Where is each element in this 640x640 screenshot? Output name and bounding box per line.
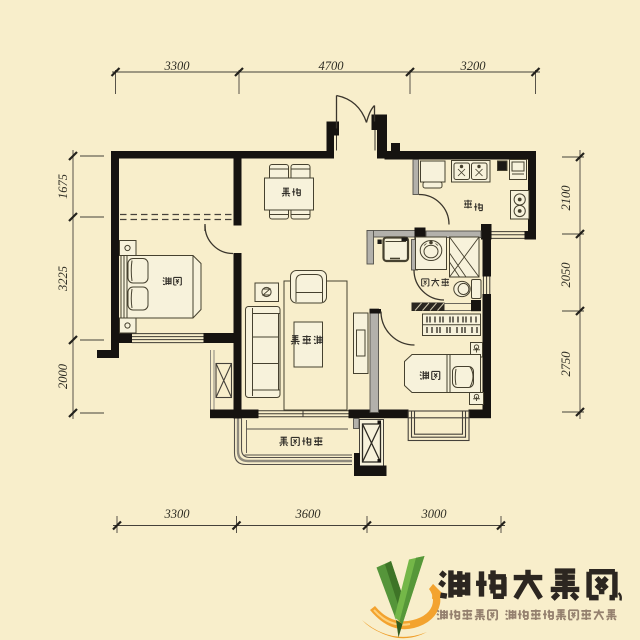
svg-text:1675: 1675 bbox=[56, 174, 70, 199]
svg-text:4700: 4700 bbox=[319, 59, 345, 73]
svg-text:3200: 3200 bbox=[460, 59, 487, 73]
svg-text:3600: 3600 bbox=[295, 507, 322, 521]
svg-text:2050: 2050 bbox=[559, 262, 573, 288]
svg-text:3300: 3300 bbox=[164, 507, 191, 521]
svg-text:3300: 3300 bbox=[164, 59, 191, 73]
svg-text:3225: 3225 bbox=[56, 266, 70, 292]
svg-text:2100: 2100 bbox=[559, 185, 573, 211]
svg-text:3000: 3000 bbox=[421, 507, 448, 521]
svg-text:2000: 2000 bbox=[56, 363, 70, 389]
svg-text:2750: 2750 bbox=[559, 351, 573, 377]
